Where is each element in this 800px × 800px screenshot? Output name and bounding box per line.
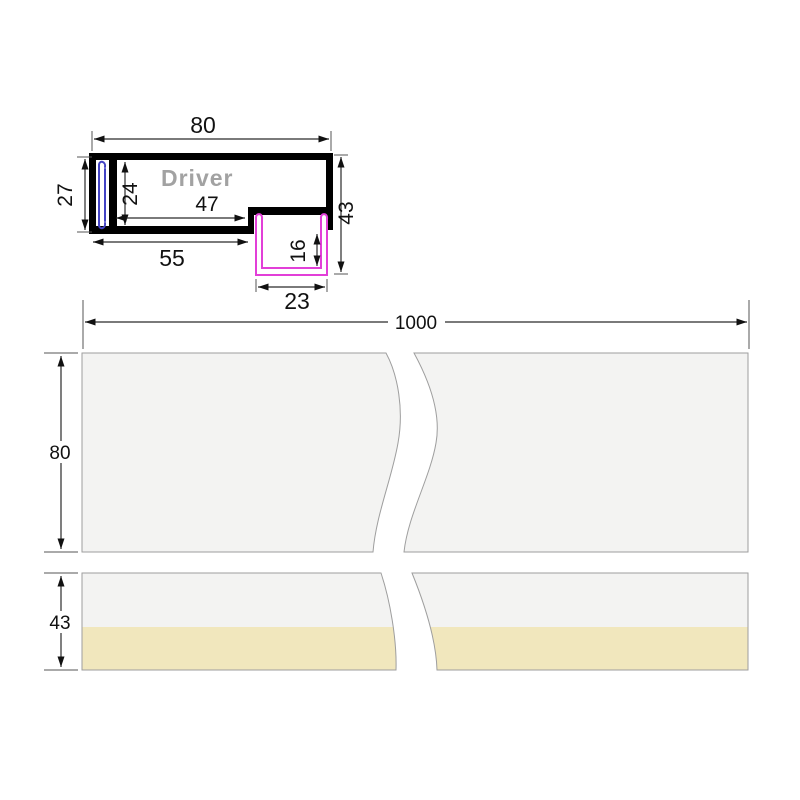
- clip-channel-blue: [99, 162, 105, 228]
- dim-label-47-cavity: 47: [195, 193, 218, 216]
- dim-label-27-left: 27: [54, 183, 77, 206]
- lower-profile-bar: [80, 573, 750, 670]
- profile-bottom-left-edge: [89, 226, 254, 234]
- led-channel-right-hook: [321, 214, 327, 219]
- upper-profile-bar: [82, 353, 748, 552]
- dimension-channel-width-23: 23: [256, 279, 327, 314]
- dim-label-16-depth: 16: [287, 239, 310, 262]
- dimension-upper-height-80: 80: [44, 353, 78, 552]
- dimension-length-1000: 1000: [83, 300, 749, 349]
- dim-label-43-total: 43: [335, 201, 358, 224]
- dimension-top-width-80: 80: [92, 112, 331, 151]
- profile-length-view: 1000 80 43: [44, 300, 750, 670]
- lower-bar-right-diffuser-strip: [410, 627, 750, 670]
- dimension-channel-depth-16: 16: [287, 234, 317, 266]
- lower-bar-left-diffuser-strip: [80, 627, 400, 670]
- dim-label-55-bottom: 55: [159, 245, 185, 271]
- upper-bar-left-segment: [82, 353, 400, 552]
- profile-top-edge: [89, 153, 333, 160]
- profile-left-inner-wall: [109, 157, 117, 231]
- profile-cross-section: Driver 80 27 24 47 55: [54, 112, 358, 314]
- dimension-lower-height-43: 43: [44, 573, 78, 670]
- dim-label-1000-length: 1000: [395, 313, 437, 334]
- dim-label-80-top: 80: [190, 112, 216, 138]
- dim-label-24-cavity: 24: [119, 182, 142, 206]
- driver-label: Driver: [161, 165, 233, 191]
- profile-left-outer-wall: [89, 153, 96, 234]
- dimension-total-height-43: 43: [334, 155, 358, 274]
- technical-drawing-page: Driver 80 27 24 47 55: [0, 0, 800, 800]
- dim-label-80-upper: 80: [49, 443, 70, 464]
- dimension-cavity-height-24: 24: [119, 162, 142, 225]
- led-channel-left-hook: [256, 214, 262, 219]
- dimension-bottom-width-55: 55: [93, 242, 248, 271]
- profile-drawing-svg: Driver 80 27 24 47 55: [0, 0, 800, 800]
- dimension-left-height-27: 27: [54, 157, 92, 232]
- upper-bar-right-segment: [404, 353, 748, 552]
- dim-label-43-lower: 43: [49, 613, 70, 634]
- dim-label-23-channel: 23: [284, 288, 310, 314]
